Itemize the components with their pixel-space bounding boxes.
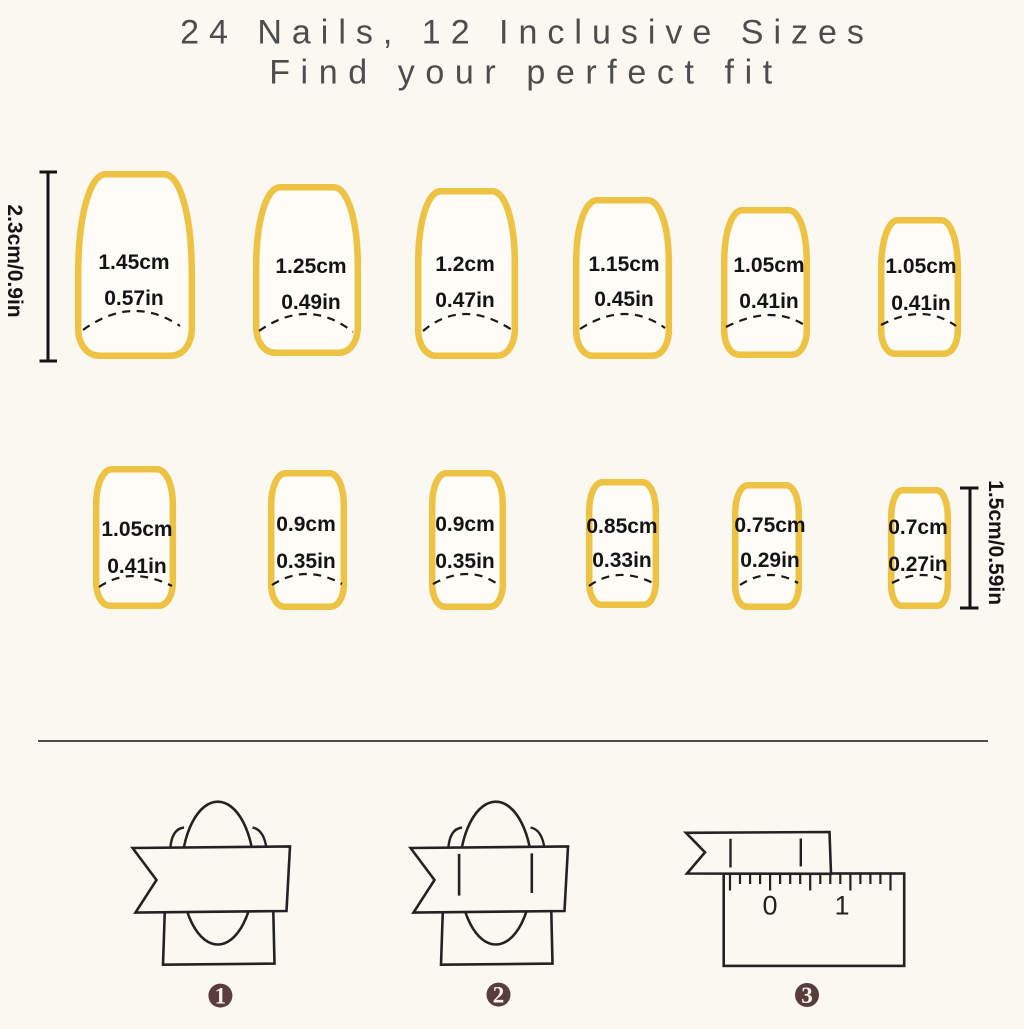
svg-text:0.41in: 0.41in [739, 290, 799, 313]
svg-text:0.7cm: 0.7cm [888, 516, 948, 539]
svg-text:0.9cm: 0.9cm [276, 513, 336, 536]
svg-text:0.57in: 0.57in [104, 287, 164, 310]
svg-text:0.45in: 0.45in [594, 288, 654, 311]
svg-text:1.2cm: 1.2cm [435, 253, 495, 276]
svg-text:0.41in: 0.41in [107, 555, 167, 578]
svg-text:0.41in: 0.41in [891, 292, 951, 315]
svg-text:0.35in: 0.35in [276, 550, 336, 573]
svg-text:0.9cm: 0.9cm [435, 513, 495, 536]
svg-text:1.5cm/0.59in: 1.5cm/0.59in [984, 480, 1007, 605]
svg-text:2: 2 [493, 983, 505, 1008]
svg-text:0.29in: 0.29in [740, 549, 800, 572]
svg-text:3: 3 [801, 983, 813, 1008]
svg-text:0: 0 [762, 891, 777, 921]
svg-text:0.49in: 0.49in [281, 291, 341, 314]
svg-text:0.33in: 0.33in [592, 549, 652, 572]
svg-text:0.35in: 0.35in [435, 550, 495, 573]
svg-text:0.47in: 0.47in [435, 289, 495, 312]
svg-text:1: 1 [834, 891, 849, 921]
svg-text:Find your perfect fit: Find your perfect fit [269, 54, 783, 92]
svg-text:1.15cm: 1.15cm [588, 253, 659, 276]
svg-text:1.05cm: 1.05cm [101, 518, 172, 541]
svg-text:1: 1 [215, 984, 227, 1009]
svg-text:1.25cm: 1.25cm [275, 255, 346, 278]
svg-text:1.45cm: 1.45cm [98, 251, 169, 274]
svg-text:0.85cm: 0.85cm [586, 515, 657, 538]
svg-text:24 Nails, 12 Inclusive Sizes: 24 Nails, 12 Inclusive Sizes [180, 14, 874, 52]
svg-text:1.05cm: 1.05cm [733, 254, 804, 277]
svg-text:0.27in: 0.27in [888, 553, 948, 576]
svg-text:1.05cm: 1.05cm [885, 255, 956, 278]
svg-text:0.75cm: 0.75cm [734, 514, 805, 537]
svg-text:2.3cm/0.9in: 2.3cm/0.9in [3, 204, 26, 317]
